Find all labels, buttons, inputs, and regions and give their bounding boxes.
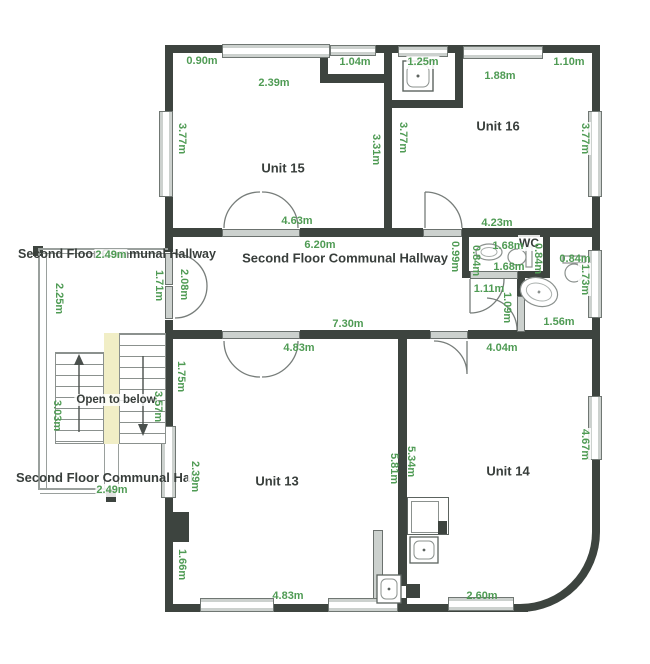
wall-hallway-bottom (300, 330, 430, 339)
door-leaf (222, 331, 300, 339)
window (222, 44, 330, 58)
door-leaf (430, 331, 468, 339)
measurement-wc-right: 0.84m (532, 243, 543, 274)
measurement-bath-door: 1.09m (501, 292, 512, 323)
window (159, 111, 173, 197)
door-leaf (165, 286, 173, 319)
counter-handle (438, 521, 447, 534)
thin-wall (38, 250, 40, 490)
measurement-stairs-left: 3.03m (51, 400, 62, 431)
room-label-unit15: Unit 15 (261, 161, 304, 176)
measurement-unit15-door: 4.63m (281, 216, 312, 227)
measurement-unit15-top-left: 0.90m (186, 56, 217, 67)
measurement-unit15-right: 3.31m (370, 134, 381, 165)
measurement-annex-right: 1.71m (153, 270, 164, 301)
measurement-annex-top: 2.49m (94, 249, 127, 262)
measurement-stairs-right: 3.57m (152, 391, 163, 422)
hallway-label-left-bottom: Second Floor Communal Hallway (16, 470, 192, 485)
wall (455, 45, 463, 108)
measurement-bath-bottom: 1.56m (543, 317, 574, 328)
curved-corner-wall (520, 480, 600, 612)
door-leaf (222, 229, 300, 237)
measurement-wc-top: 1.68m (492, 241, 523, 252)
measurement-bath-right: 1.73m (578, 263, 591, 296)
measurement-annex-left: 2.25m (53, 283, 64, 314)
measurement-unit15-left: 3.77m (175, 122, 188, 155)
floor-plan: Unit 15 Unit 16 Unit 13 Unit 14 Second F… (0, 0, 650, 664)
stair-gap-highlight (104, 333, 119, 444)
wall-divider-unit15-16 (384, 45, 392, 237)
wall (320, 74, 384, 83)
window (463, 46, 543, 59)
room-label-unit13: Unit 13 (255, 474, 298, 489)
measurement-unit13-wall-lower: 1.66m (175, 548, 188, 581)
measurement-unit16-bottom: 4.23m (481, 218, 512, 229)
wall-stub (406, 584, 420, 598)
measurement-unit16-right: 3.77m (578, 122, 591, 155)
door-leaf (423, 229, 462, 237)
wall-hallway-bottom (165, 330, 222, 339)
measurement-unit15-alcove: 1.04m (339, 57, 370, 68)
hallway-label-main: Second Floor Communal Hallway (242, 251, 448, 266)
measurement-unit13-right: 5.81m (388, 453, 399, 484)
measurement-lobby-door: 1.11m (474, 284, 505, 295)
measurement-hallway-bottom: 7.30m (332, 319, 363, 330)
measurement-wc-left: 0.84m (470, 245, 481, 276)
door-swing-icon (423, 190, 463, 230)
thin-wall (46, 252, 47, 490)
sink-basin (411, 501, 439, 533)
measurement-wc-bottom: 1.68m (493, 262, 524, 273)
measurement-annex-bottom: 2.49m (95, 484, 128, 497)
measurement-unit13-left-window: 2.39m (188, 460, 201, 493)
wall-jog (173, 512, 189, 542)
room-label-unit16: Unit 16 (476, 119, 519, 134)
measurement-unit14-left: 5.34m (405, 446, 416, 477)
measurement-unit14-right: 4.67m (578, 428, 591, 461)
measurement-unit13-door: 4.83m (283, 343, 314, 354)
measurement-unit16-top-right: 1.10m (553, 57, 584, 68)
measurement-wc-outside: 0.99m (449, 241, 460, 272)
bathtub-icon (518, 272, 560, 312)
measurement-unit16-left: 3.77m (397, 122, 408, 153)
shower-tray-icon (409, 536, 439, 564)
measurement-unit16-top-window: 1.88m (484, 71, 515, 82)
window (200, 598, 274, 612)
door-swing-icon (432, 339, 470, 387)
wall (392, 100, 463, 108)
measurement-annex-door: 2.08m (177, 268, 190, 301)
room-label-unit14: Unit 14 (486, 464, 529, 479)
open-to-below-label: Open to below (74, 394, 157, 406)
measurement-hallway-top: 6.20m (304, 240, 335, 251)
measurement-unit13-wall-upper: 1.75m (174, 360, 187, 393)
measurement-unit16-alcove: 1.25m (406, 56, 439, 69)
window (330, 45, 376, 56)
measurement-unit14-top: 4.04m (486, 343, 517, 354)
shower-tray-icon (376, 574, 402, 604)
measurement-unit15-top-window: 2.39m (258, 78, 289, 89)
measurement-unit14-bottom: 2.60m (466, 591, 497, 602)
measurement-unit13-bottom: 4.83m (272, 591, 303, 602)
